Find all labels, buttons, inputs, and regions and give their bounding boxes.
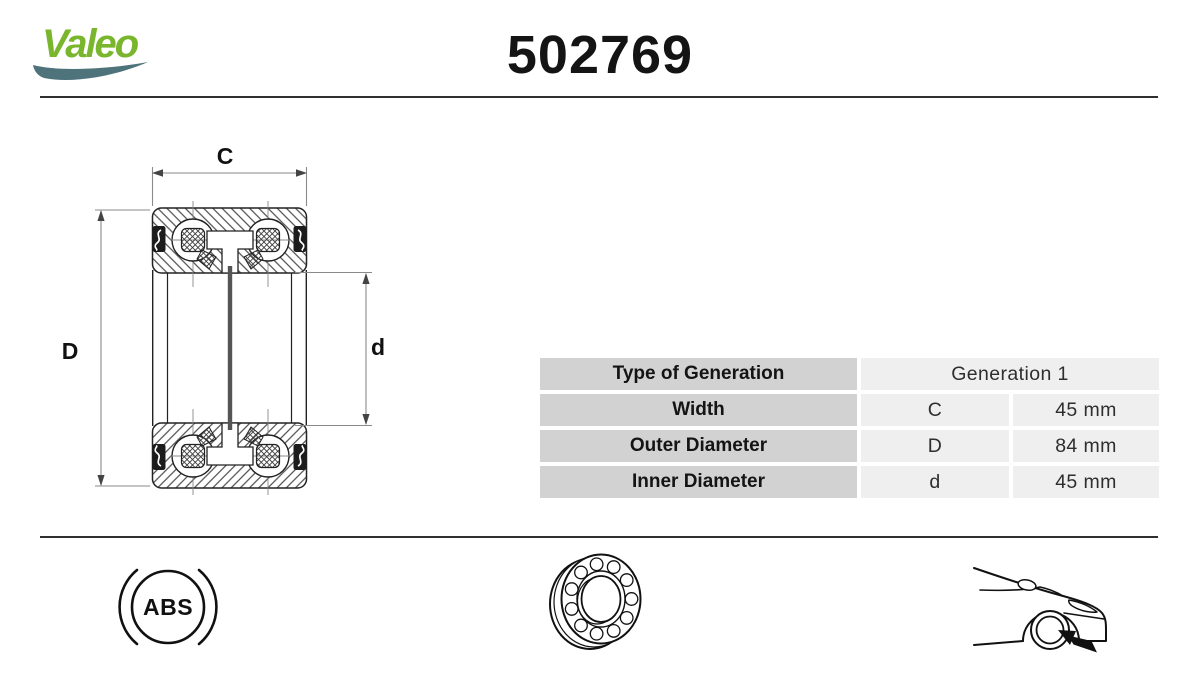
spec-row-outer-diameter-symbol: D (861, 430, 1009, 462)
axis-line (228, 266, 232, 430)
spec-row-width-value: 45 mm (1013, 394, 1159, 426)
spec-row-generation-label: Type of Generation (540, 358, 857, 390)
header-divider (40, 96, 1158, 98)
spec-row-inner-diameter-symbol: d (861, 466, 1009, 498)
abs-left-arc (120, 570, 137, 644)
dimension-outer-diameter-D (95, 210, 150, 486)
spec-row-width-label: Width (540, 394, 857, 426)
spec-row-inner-diameter-value: 45 mm (1013, 466, 1159, 498)
spec-row-width-symbol: C (861, 394, 1009, 426)
spec-table: Type of Generation Generation 1 Width C … (540, 358, 1159, 498)
abs-right-arc (199, 570, 216, 644)
spec-row-outer-diameter-value: 84 mm (1013, 430, 1159, 462)
wheel-bearing-icon (550, 555, 641, 650)
spec-row-inner-diameter-label: Inner Diameter (540, 466, 857, 498)
part-number: 502769 (0, 28, 1200, 82)
bearing-bore-section (153, 266, 307, 430)
label-C: C (217, 143, 234, 169)
footer-divider (40, 536, 1158, 538)
abs-label: ABS (143, 594, 193, 620)
bearing-cross-section-drawing: C D d (0, 100, 460, 540)
spec-row-generation-value: Generation 1 (861, 358, 1159, 390)
label-d: d (371, 334, 385, 360)
spec-row-outer-diameter-label: Outer Diameter (540, 430, 857, 462)
label-D: D (62, 338, 79, 364)
footer-pictograms: ABS (0, 545, 1200, 673)
dimension-width-C (152, 167, 307, 206)
spec-sheet-page: Valeo 502769 (0, 0, 1200, 675)
car-front-wheel-location-icon (974, 568, 1106, 653)
